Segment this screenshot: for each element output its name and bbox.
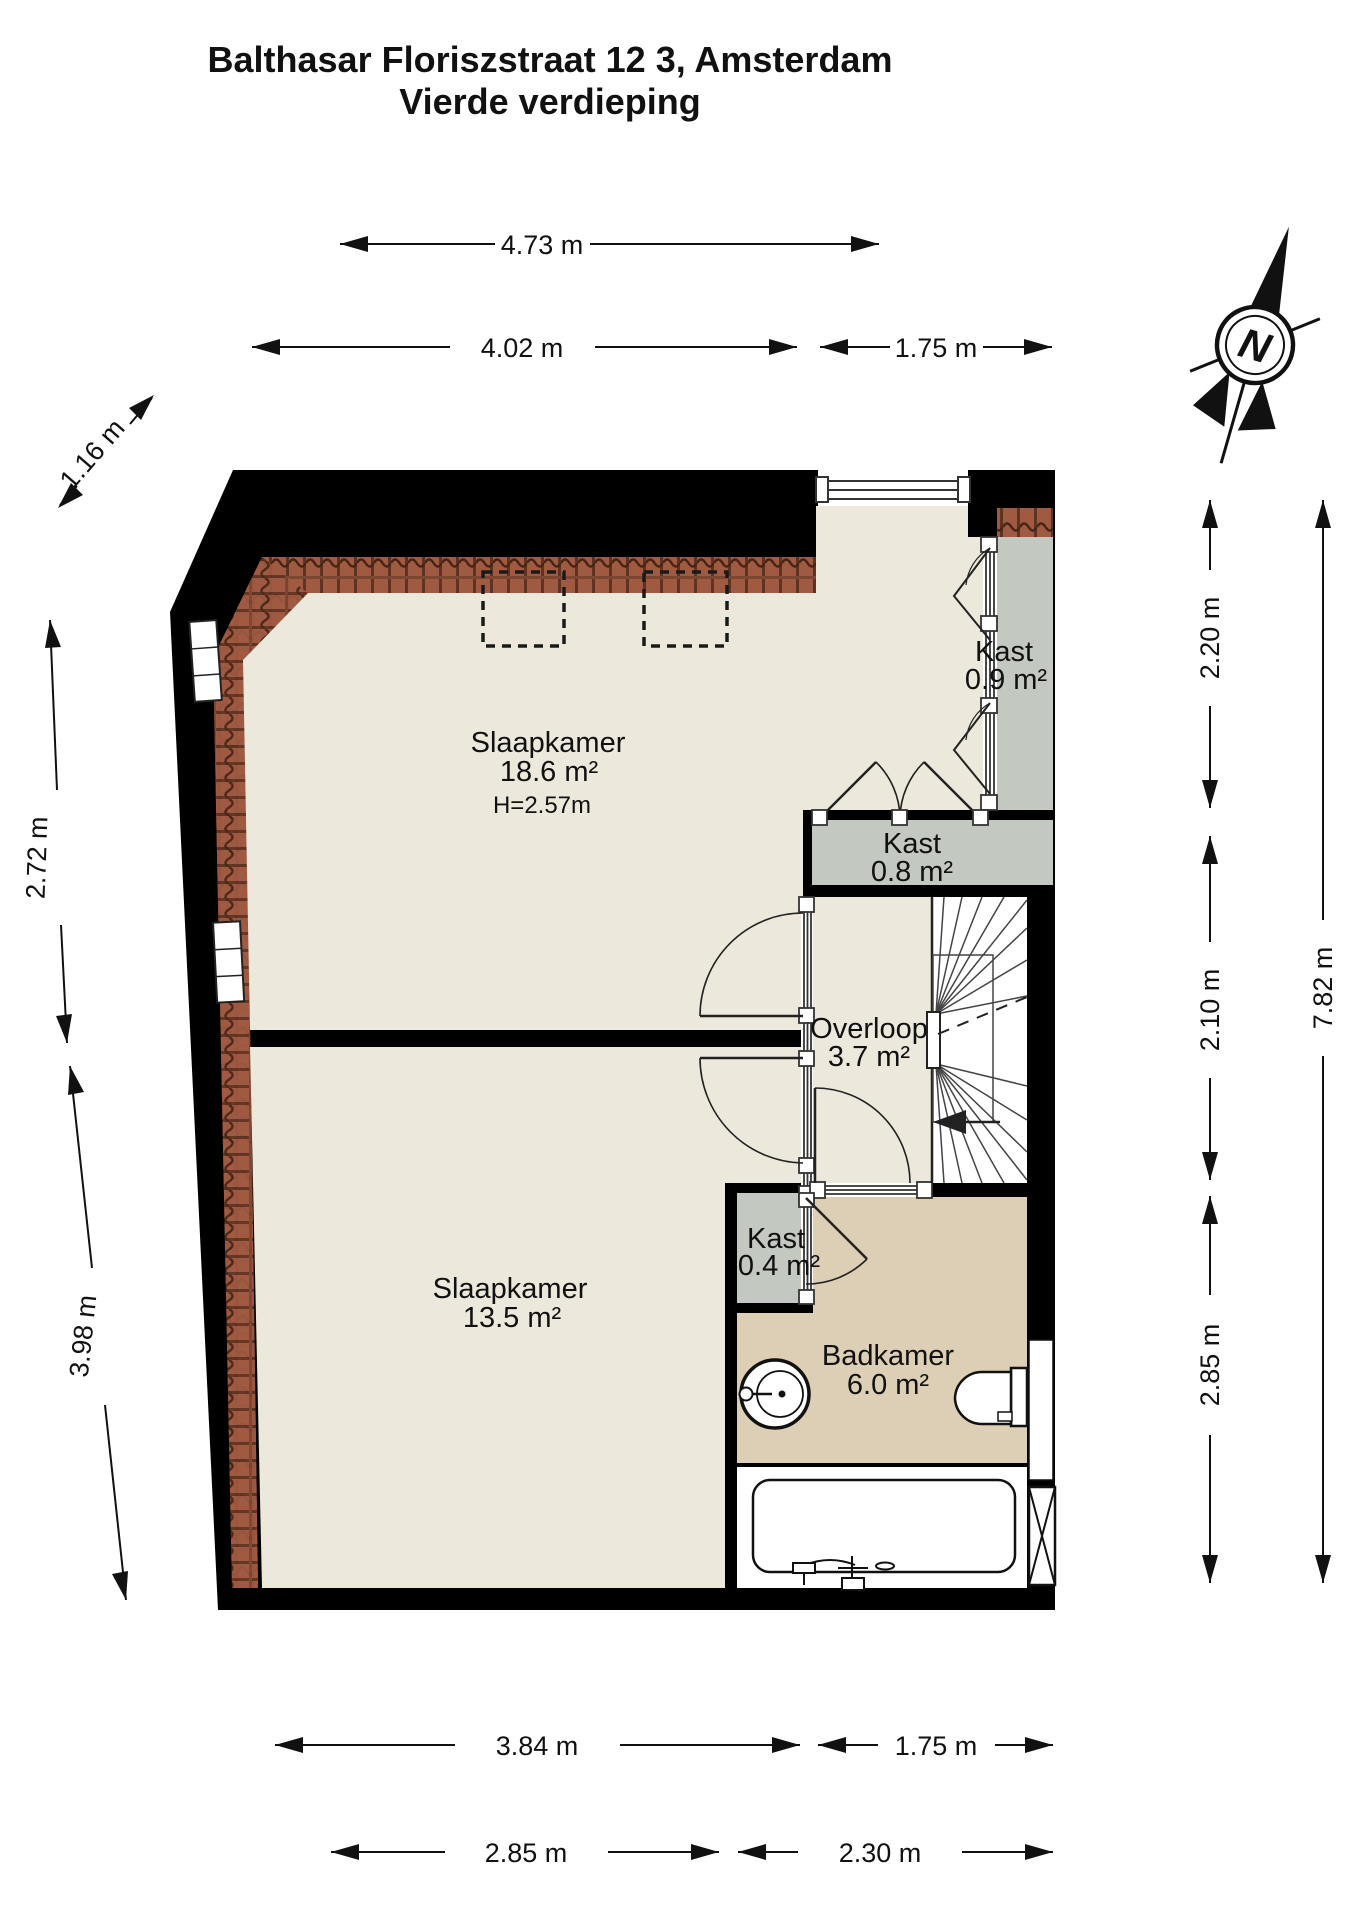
roof-tile-band-right: [997, 508, 1053, 537]
svg-text:3.84 m: 3.84 m: [496, 1731, 579, 1761]
svg-text:2.85 m: 2.85 m: [1195, 1324, 1225, 1407]
page-title-line1: Balthasar Floriszstraat 12 3, Amsterdam: [208, 39, 893, 80]
compass-icon: N: [1168, 212, 1342, 479]
svg-text:2.10 m: 2.10 m: [1195, 969, 1225, 1052]
shaft-icon: [1029, 1487, 1055, 1585]
svg-text:2.20 m: 2.20 m: [1195, 597, 1225, 680]
dim-bottom-230: 2.30 m: [738, 1838, 1053, 1868]
dim-bottom-175: 1.75 m: [818, 1731, 1053, 1761]
svg-text:2.85 m: 2.85 m: [485, 1838, 568, 1868]
dim-right-220: 2.20 m: [1195, 500, 1225, 808]
svg-text:7.82 m: 7.82 m: [1308, 947, 1338, 1030]
label-overloop-area: 3.7 m²: [828, 1041, 911, 1073]
label-slaapkamer1-height: H=2.57m: [493, 792, 591, 819]
label-kast04-area: 0.4 m²: [738, 1250, 821, 1282]
sink-icon: [740, 1360, 810, 1428]
label-slaapkamer1-area: 18.6 m²: [500, 756, 599, 788]
floorplan-canvas: Balthasar Floriszstraat 12 3, Amsterdam …: [0, 0, 1358, 1920]
svg-text:3.98 m: 3.98 m: [64, 1293, 102, 1378]
dim-top-175: 1.75 m: [820, 333, 1052, 363]
svg-text:2.30 m: 2.30 m: [839, 1838, 922, 1868]
label-slaapkamer1-name: Slaapkamer: [471, 727, 626, 759]
dim-left-272: 2.72 m: [21, 620, 72, 1043]
dim-bottom-384: 3.84 m: [275, 1731, 800, 1761]
dim-right-782: 7.82 m: [1308, 500, 1338, 1583]
dim-bottom-285: 2.85 m: [331, 1838, 719, 1868]
toilet-icon: [955, 1368, 1027, 1426]
svg-text:1.75 m: 1.75 m: [895, 1731, 978, 1761]
threshold-badkamer: [810, 1182, 932, 1198]
dim-right-285: 2.85 m: [1195, 1196, 1225, 1583]
floorplan-page: Balthasar Floriszstraat 12 3, Amsterdam …: [0, 0, 1358, 1920]
svg-text:2.72 m: 2.72 m: [21, 816, 54, 900]
label-badkamer-area: 6.0 m²: [847, 1369, 930, 1401]
roof-window-lower: [213, 921, 244, 1002]
page-title-line2: Vierde verdieping: [399, 81, 700, 122]
svg-text:1.75 m: 1.75 m: [895, 333, 978, 363]
label-slaapkamer2-name: Slaapkamer: [433, 1273, 588, 1305]
label-kast08-area: 0.8 m²: [871, 856, 954, 888]
label-kast09-area: 0.9 m²: [965, 664, 1048, 696]
dim-top-402: 4.02 m: [252, 333, 797, 363]
label-slaapkamer2-area: 13.5 m²: [463, 1302, 562, 1334]
label-badkamer-name: Badkamer: [822, 1340, 955, 1372]
dim-right-210: 2.10 m: [1195, 836, 1225, 1180]
stair-newel-post: [927, 1012, 940, 1068]
partition-overloop: [799, 897, 814, 1201]
wall-niche: [1029, 1340, 1053, 1480]
roof-window-upper: [189, 620, 222, 702]
svg-text:4.73 m: 4.73 m: [501, 230, 584, 260]
svg-text:4.02 m: 4.02 m: [481, 333, 564, 363]
svg-text:1.16 m: 1.16 m: [54, 413, 131, 495]
dim-left-398: 3.98 m: [64, 1066, 128, 1600]
dim-top-473: 4.73 m: [340, 230, 879, 260]
window-top: [816, 470, 970, 506]
dim-left-116: 1.16 m: [54, 395, 154, 508]
